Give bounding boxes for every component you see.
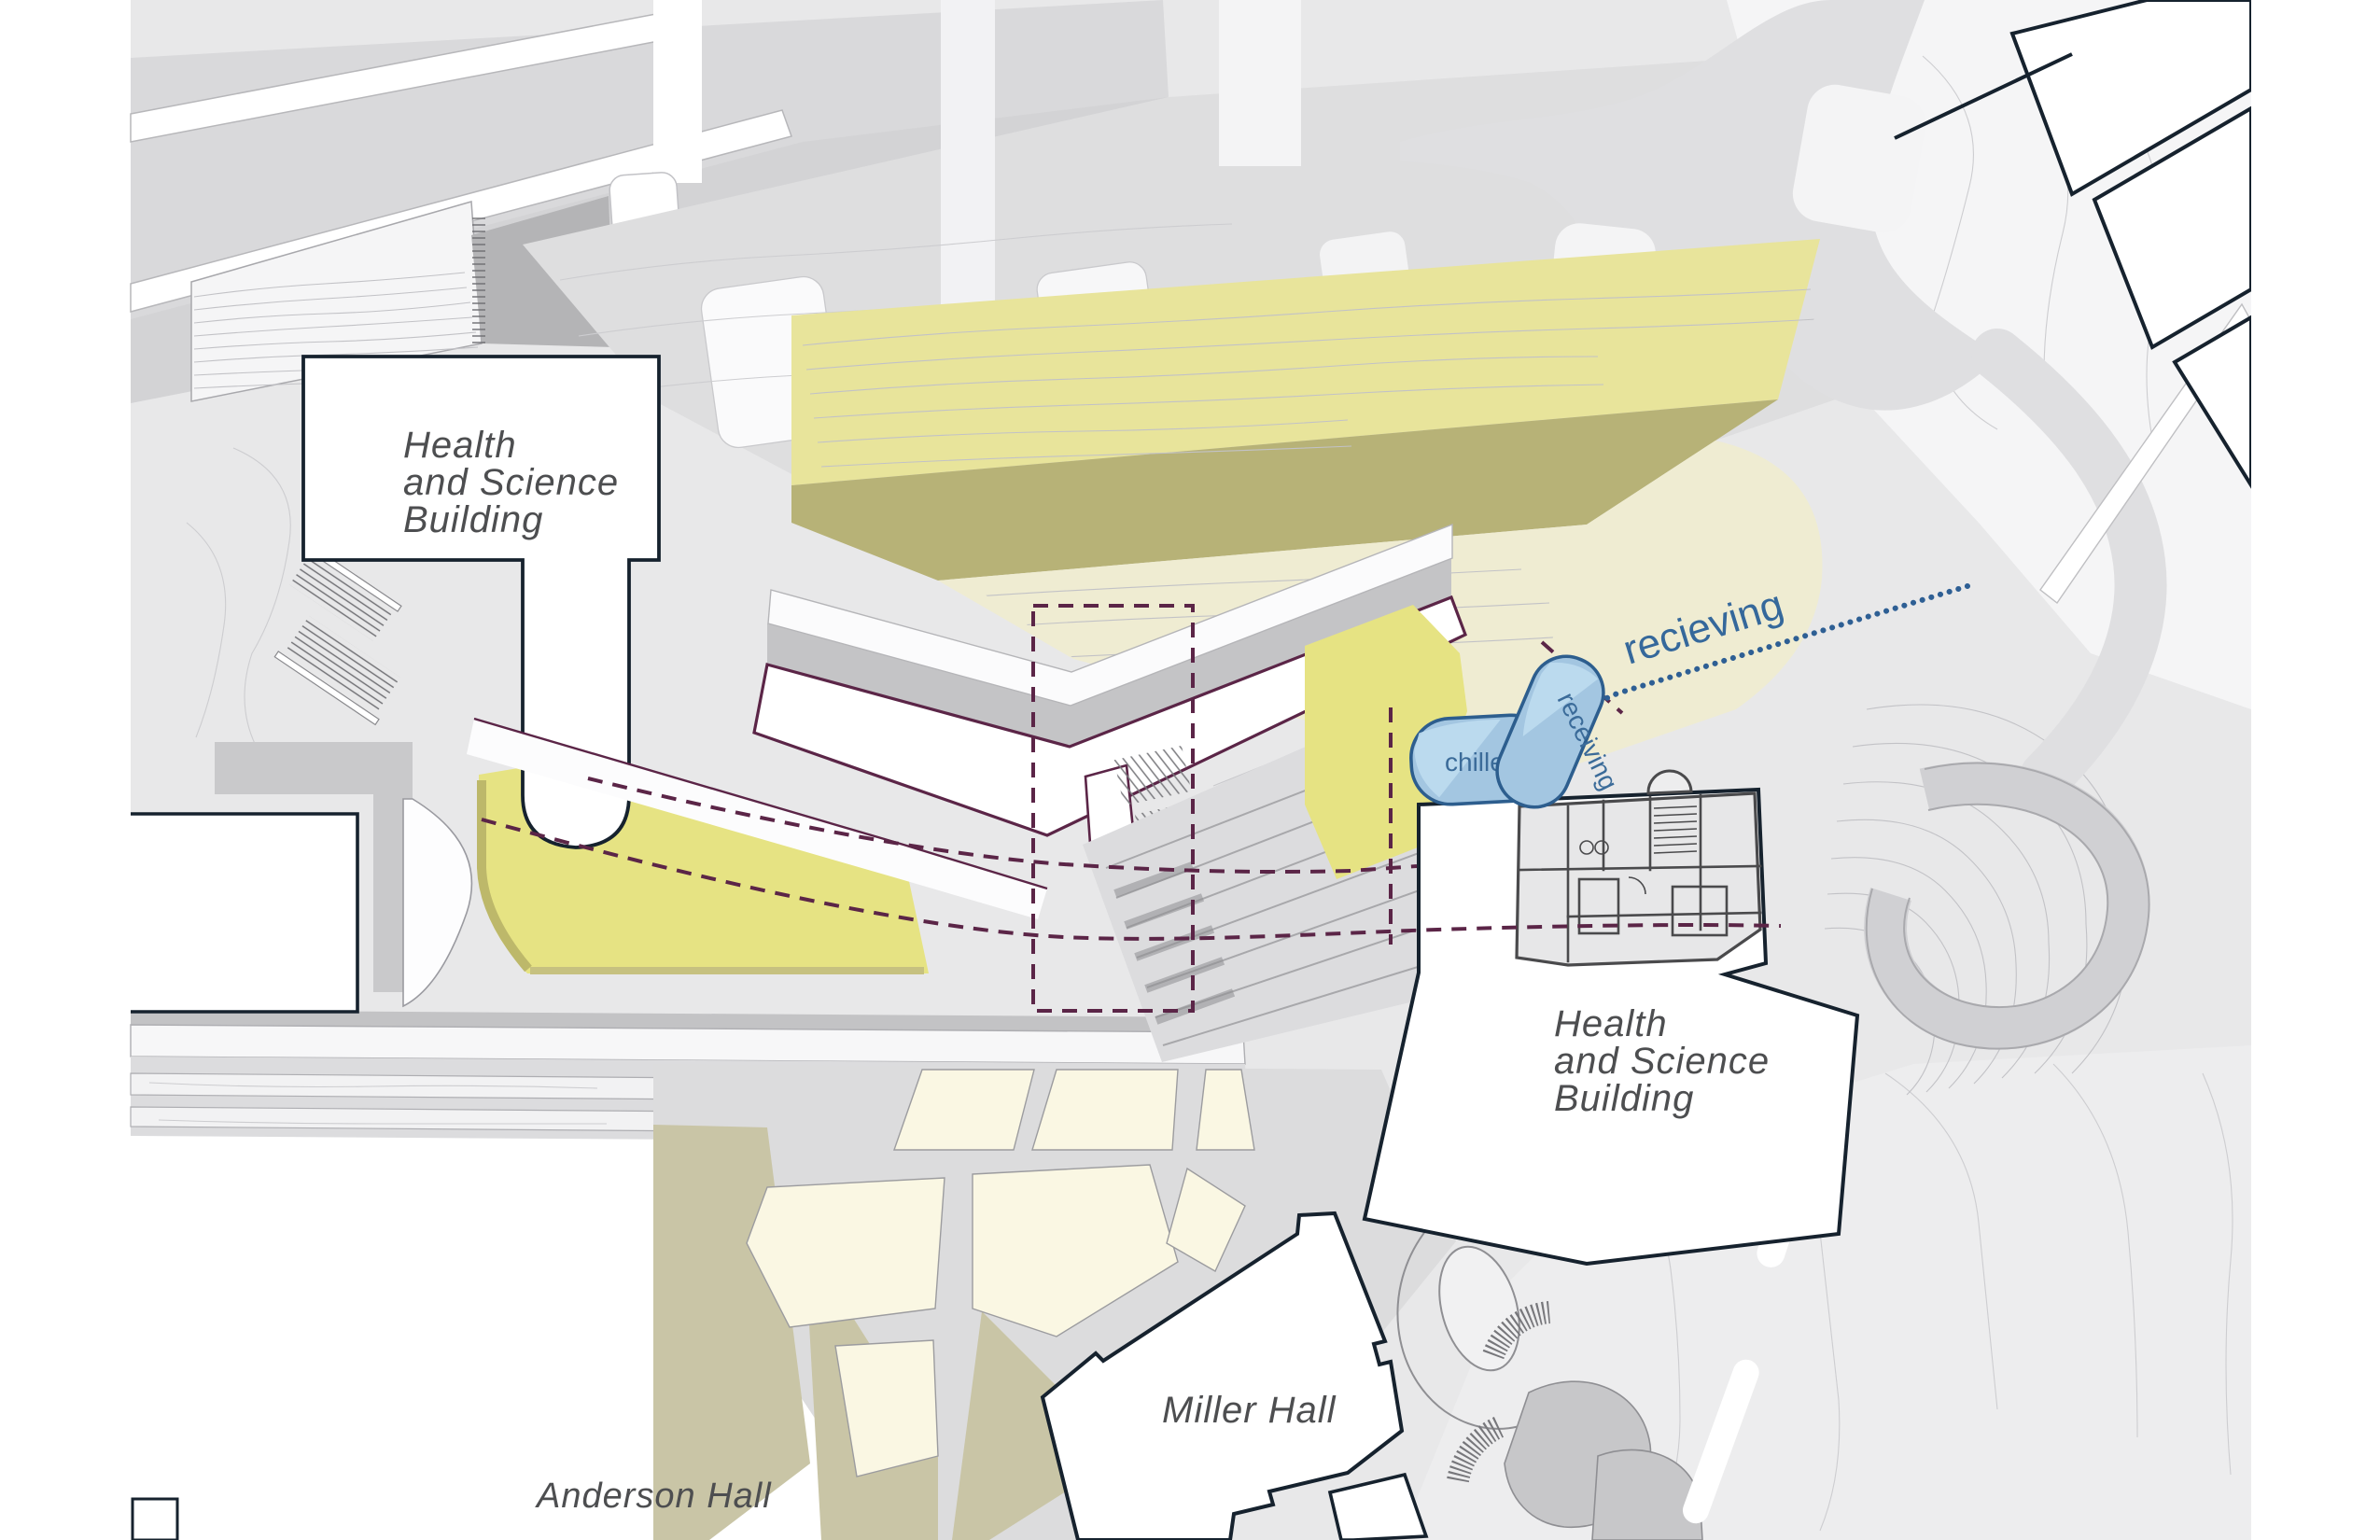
vertical-path-gap-2 [1219,0,1301,166]
site-plan-canvas: Health and Science Building [0,0,2380,1540]
right-margin [2251,0,2380,1540]
label-line: Building [403,499,543,540]
label-line: Miller Hall [1162,1390,1337,1431]
road-gap-top [653,0,702,183]
vertical-path-gap [941,0,995,308]
road-island-a [1788,80,1930,237]
stair-strip-corridor [472,213,485,345]
label-miller-hall: Miller Hall [1162,1390,1337,1431]
label-anderson-hall: Anderson Hall [535,1477,772,1516]
building-tiny-corner [133,1499,177,1540]
label-line: Health [403,425,517,466]
label-line: Anderson Hall [535,1477,772,1516]
label-line: and Science [403,462,619,503]
label-line: and Science [1554,1041,1770,1082]
site-plan-drawing: Health and Science Building [0,0,2380,1540]
garden-bed [1032,1070,1178,1150]
building-far-left [131,814,357,1012]
label-line: Health [1554,1003,1668,1044]
label-line: Building [1554,1078,1694,1119]
